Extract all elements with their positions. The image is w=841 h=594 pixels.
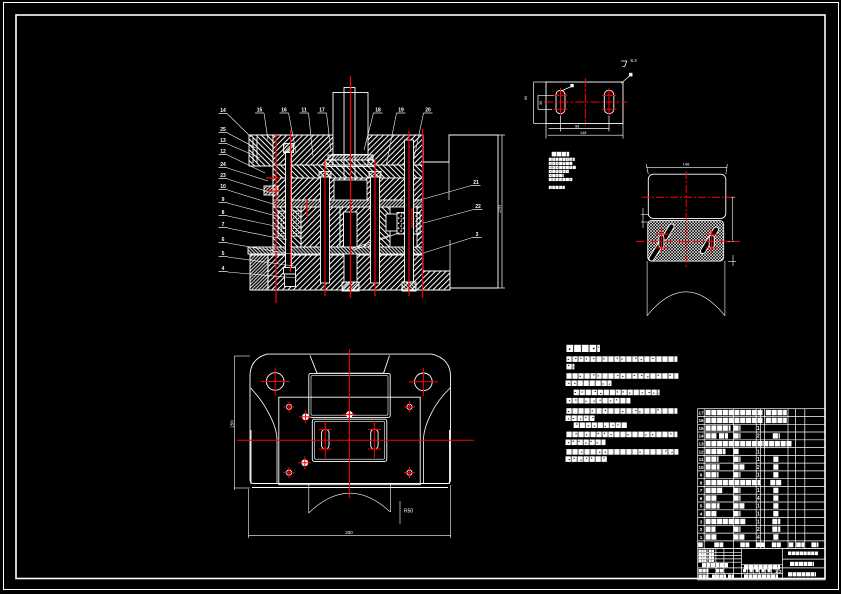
svg-text:1: 1 <box>757 504 760 510</box>
svg-text:21: 21 <box>473 180 479 186</box>
svg-text:17: 17 <box>319 108 325 114</box>
svg-text:23: 23 <box>220 173 226 179</box>
svg-text:6.3: 6.3 <box>631 58 638 63</box>
svg-text:12: 12 <box>220 149 226 155</box>
svg-text:1: 1 <box>757 457 760 463</box>
svg-text:270: 270 <box>497 205 502 213</box>
svg-text:R50: R50 <box>404 509 413 515</box>
svg-text:16: 16 <box>698 418 704 423</box>
svg-text:1: 1 <box>757 442 760 448</box>
svg-text:1: 1 <box>757 488 760 494</box>
svg-text:98: 98 <box>575 125 579 129</box>
svg-text:148: 148 <box>580 131 586 135</box>
svg-text:250: 250 <box>230 420 235 428</box>
svg-text:5: 5 <box>700 504 703 509</box>
svg-text:11: 11 <box>301 108 307 114</box>
svg-text:2: 2 <box>700 527 703 532</box>
svg-text:1:2: 1:2 <box>775 569 782 574</box>
svg-text:13: 13 <box>220 138 226 144</box>
svg-text:3: 3 <box>700 519 703 524</box>
svg-text:1: 1 <box>757 449 760 455</box>
svg-text:1: 1 <box>757 512 760 518</box>
svg-text:4: 4 <box>757 496 760 502</box>
svg-text:8: 8 <box>222 210 225 216</box>
svg-text:11: 11 <box>699 457 704 462</box>
svg-text:12: 12 <box>698 449 704 454</box>
svg-text:5: 5 <box>222 251 225 257</box>
svg-text:1: 1 <box>757 473 760 479</box>
svg-text:330: 330 <box>345 530 353 535</box>
svg-text:1: 1 <box>757 418 760 424</box>
svg-text:22: 22 <box>475 204 481 210</box>
svg-text:10: 10 <box>698 465 704 470</box>
svg-text:1: 1 <box>757 426 760 432</box>
svg-text:30: 30 <box>539 101 543 105</box>
svg-text:18: 18 <box>375 108 381 114</box>
svg-text:13: 13 <box>698 442 704 447</box>
svg-text:6: 6 <box>222 237 225 243</box>
svg-text:2: 2 <box>757 465 760 471</box>
svg-text:4: 4 <box>757 535 760 541</box>
svg-text:6: 6 <box>700 496 703 501</box>
svg-text:20: 20 <box>425 108 431 114</box>
svg-text:14: 14 <box>220 108 226 114</box>
svg-text:15: 15 <box>257 108 263 114</box>
svg-text:7: 7 <box>700 488 703 493</box>
svg-text:148: 148 <box>683 162 690 167</box>
svg-text:4: 4 <box>700 512 703 517</box>
svg-text:60: 60 <box>524 96 528 100</box>
svg-text:3: 3 <box>476 232 479 238</box>
svg-text:16: 16 <box>281 108 287 114</box>
svg-text:1: 1 <box>757 519 760 525</box>
svg-text:8: 8 <box>700 480 703 485</box>
svg-text:7: 7 <box>222 222 225 228</box>
svg-text:10: 10 <box>220 184 226 190</box>
svg-text:4: 4 <box>222 266 225 272</box>
svg-text:2: 2 <box>757 527 760 533</box>
svg-text:17: 17 <box>698 410 704 415</box>
svg-text:1: 1 <box>757 480 760 486</box>
svg-text:14: 14 <box>698 434 704 439</box>
svg-text:19: 19 <box>398 108 404 114</box>
svg-text:1: 1 <box>757 410 760 416</box>
svg-text:1: 1 <box>700 535 703 540</box>
svg-text:2: 2 <box>757 434 760 440</box>
svg-text:25: 25 <box>220 127 226 133</box>
svg-text:9: 9 <box>700 473 703 478</box>
svg-text:15: 15 <box>698 426 704 431</box>
svg-text:24: 24 <box>220 162 226 168</box>
svg-text:9: 9 <box>222 197 225 203</box>
